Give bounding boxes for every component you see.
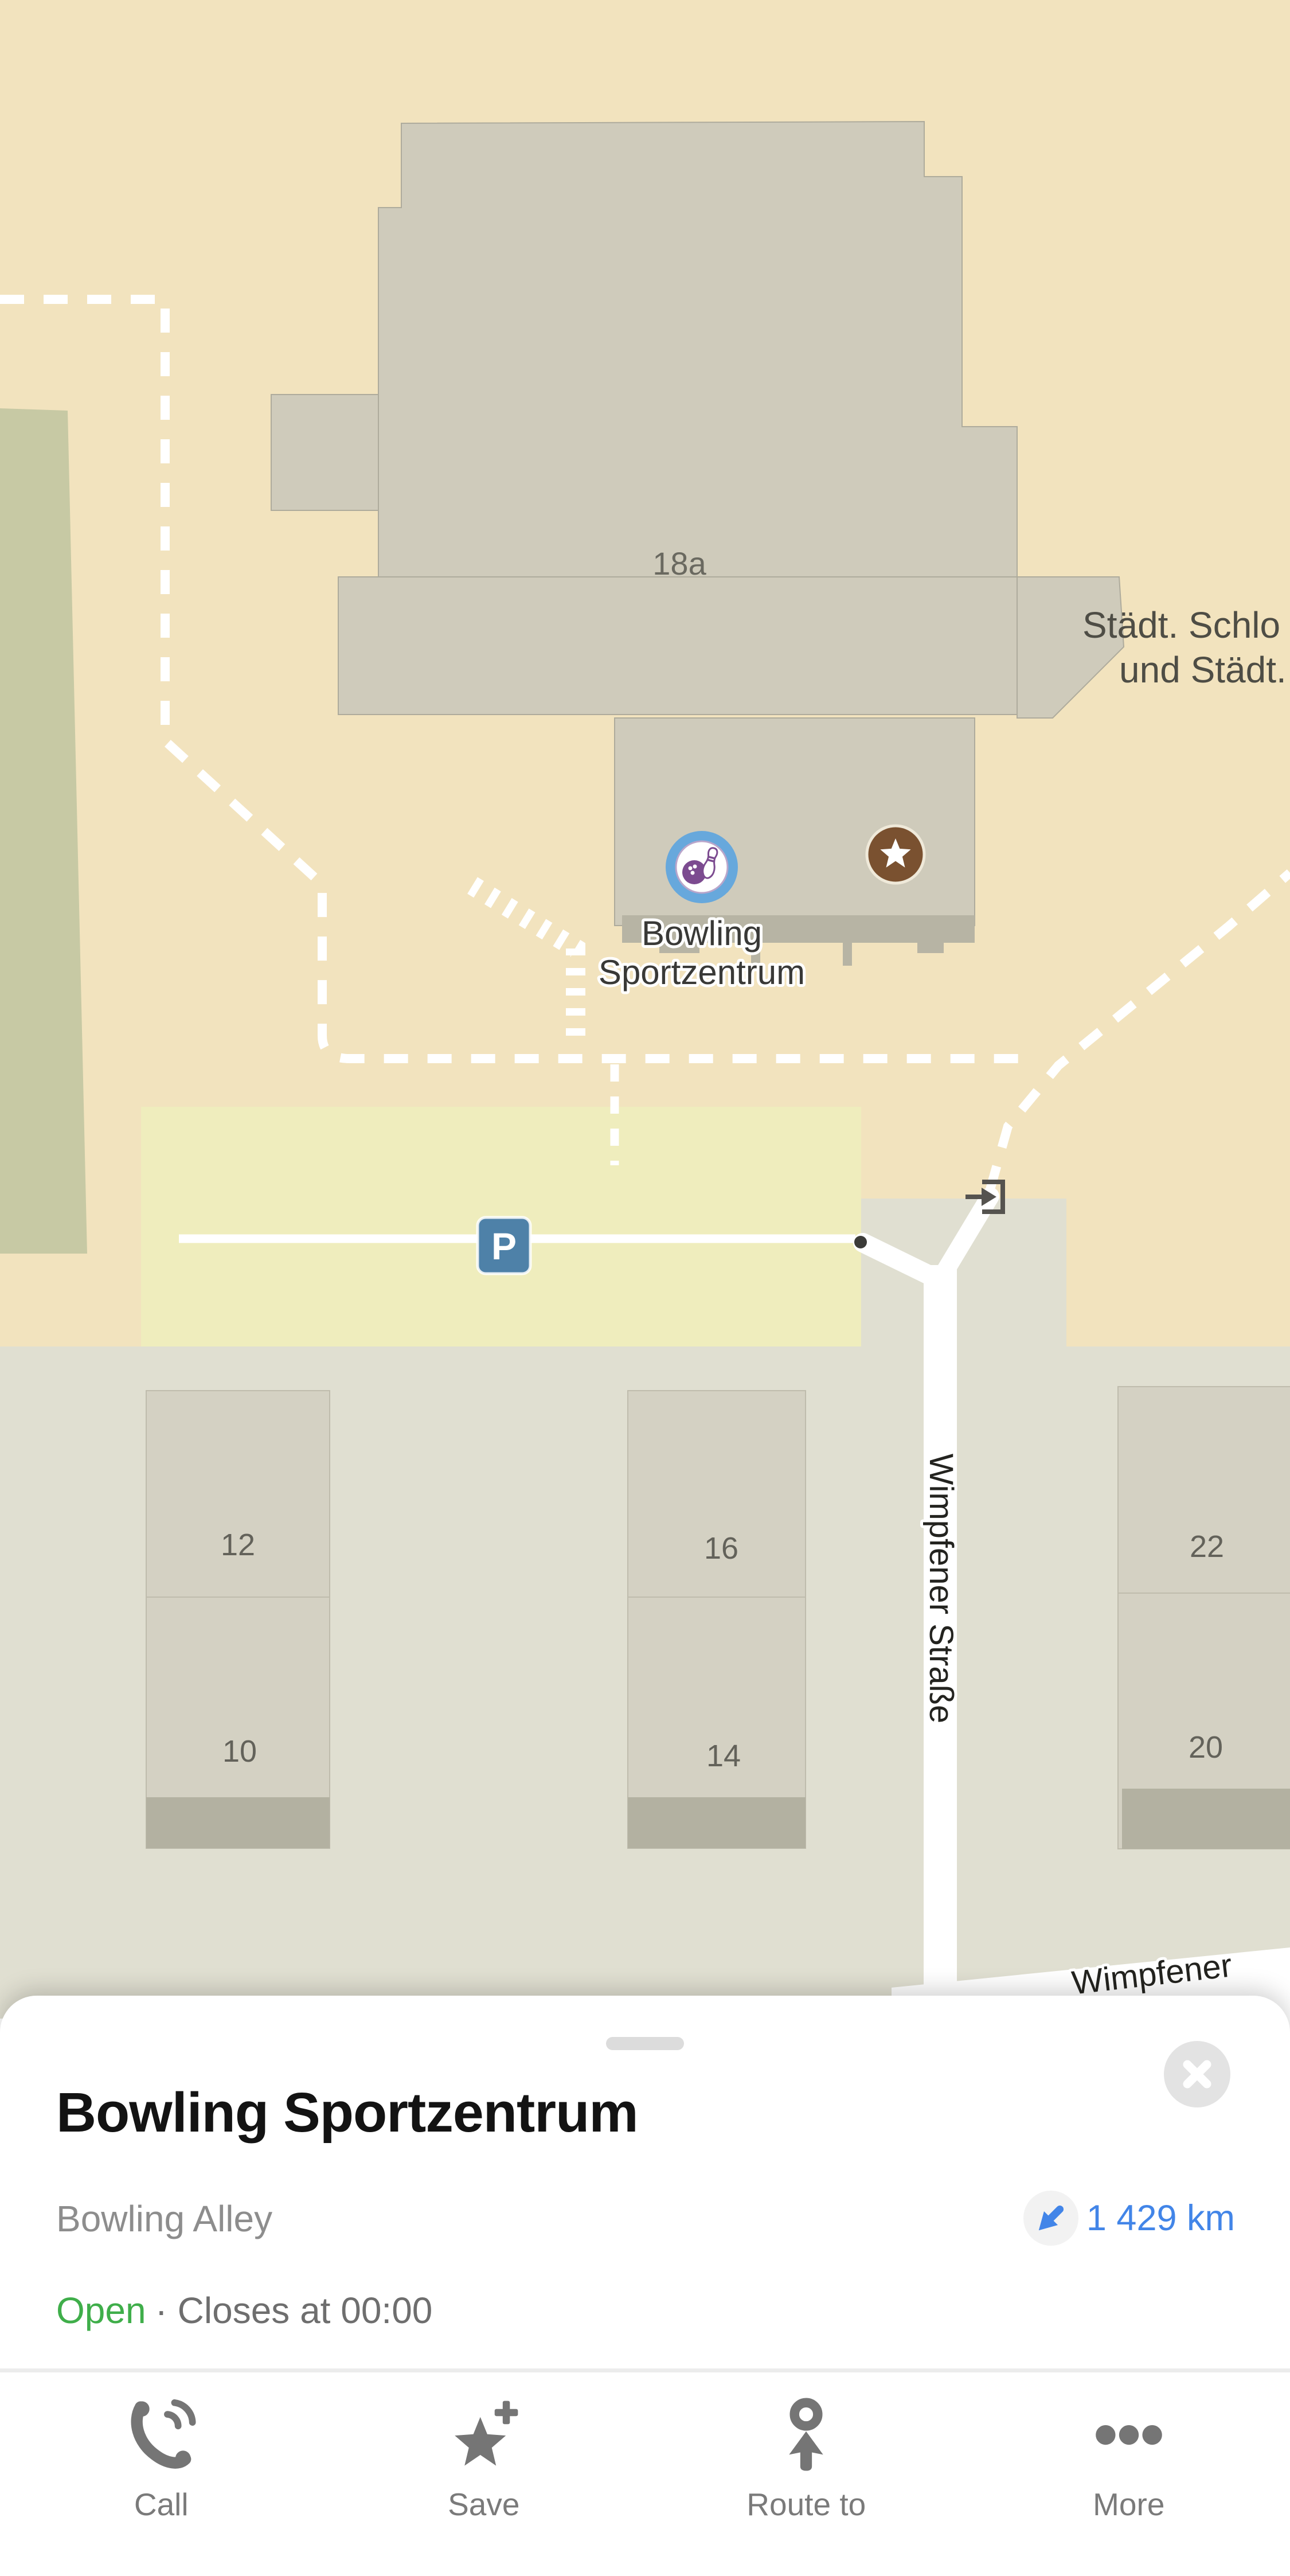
building-22-20 xyxy=(1118,1387,1290,1849)
bowling-poi-icon[interactable] xyxy=(666,831,738,903)
action-label: More xyxy=(1093,2486,1164,2523)
opening-status: Open· Closes at 00:00 xyxy=(56,2289,432,2332)
street-label-vertical: Wimpfener Straße xyxy=(922,1454,960,1724)
place-category: Bowling Alley xyxy=(56,2198,272,2240)
direction-arrow-icon xyxy=(1023,2191,1078,2246)
close-icon xyxy=(1164,2041,1230,2107)
house-number: 14 xyxy=(706,1739,741,1773)
star-plus-icon xyxy=(441,2392,527,2478)
poi-label-line2: Sportzentrum xyxy=(599,953,805,992)
place-card: Bowling Sportzentrum Bowling Alley 1 429… xyxy=(0,1996,1290,2576)
action-label: Call xyxy=(134,2486,189,2523)
divider xyxy=(0,2368,1290,2372)
area-label-line2: und Städt. xyxy=(1119,649,1287,690)
poi-label-line1: Bowling xyxy=(642,914,762,953)
saved-star-poi-icon[interactable] xyxy=(867,826,924,883)
drag-handle[interactable] xyxy=(606,2037,684,2050)
building-16-14 xyxy=(628,1391,806,1848)
action-label: Route to xyxy=(746,2486,866,2523)
call-button[interactable]: Call xyxy=(0,2372,323,2576)
house-number: 10 xyxy=(222,1734,257,1769)
status-hours: · Closes at 00:00 xyxy=(155,2290,433,2331)
action-label: Save xyxy=(448,2486,519,2523)
more-button[interactable]: More xyxy=(968,2372,1290,2576)
phone-icon xyxy=(118,2392,204,2478)
house-number: 12 xyxy=(221,1528,255,1562)
house-number: 22 xyxy=(1190,1529,1224,1564)
distance-value: 1 429 km xyxy=(1086,2198,1235,2239)
building-number-label: 18a xyxy=(652,545,706,581)
action-bar: Call Save Route to More xyxy=(0,2372,1290,2576)
house-number: 20 xyxy=(1189,1730,1223,1765)
status-open: Open xyxy=(56,2290,146,2331)
ellipsis-icon xyxy=(1086,2392,1172,2478)
route-icon xyxy=(763,2392,849,2478)
building-12-10 xyxy=(146,1391,330,1848)
parking-badge-letter: P xyxy=(491,1225,517,1267)
route-to-button[interactable]: Route to xyxy=(645,2372,968,2576)
close-button[interactable] xyxy=(1164,2041,1230,2107)
place-title: Bowling Sportzentrum xyxy=(56,2081,638,2145)
parking-badge[interactable]: P xyxy=(478,1217,530,1274)
area-label-line1: Städt. Schlo xyxy=(1082,604,1280,646)
save-button[interactable]: Save xyxy=(323,2372,646,2576)
house-number: 16 xyxy=(704,1531,738,1566)
map-canvas[interactable]: 18a Städt. Schlo und Städt. 12 10 16 14 … xyxy=(0,0,1290,2019)
distance-info: 1 429 km xyxy=(1023,2189,1235,2247)
